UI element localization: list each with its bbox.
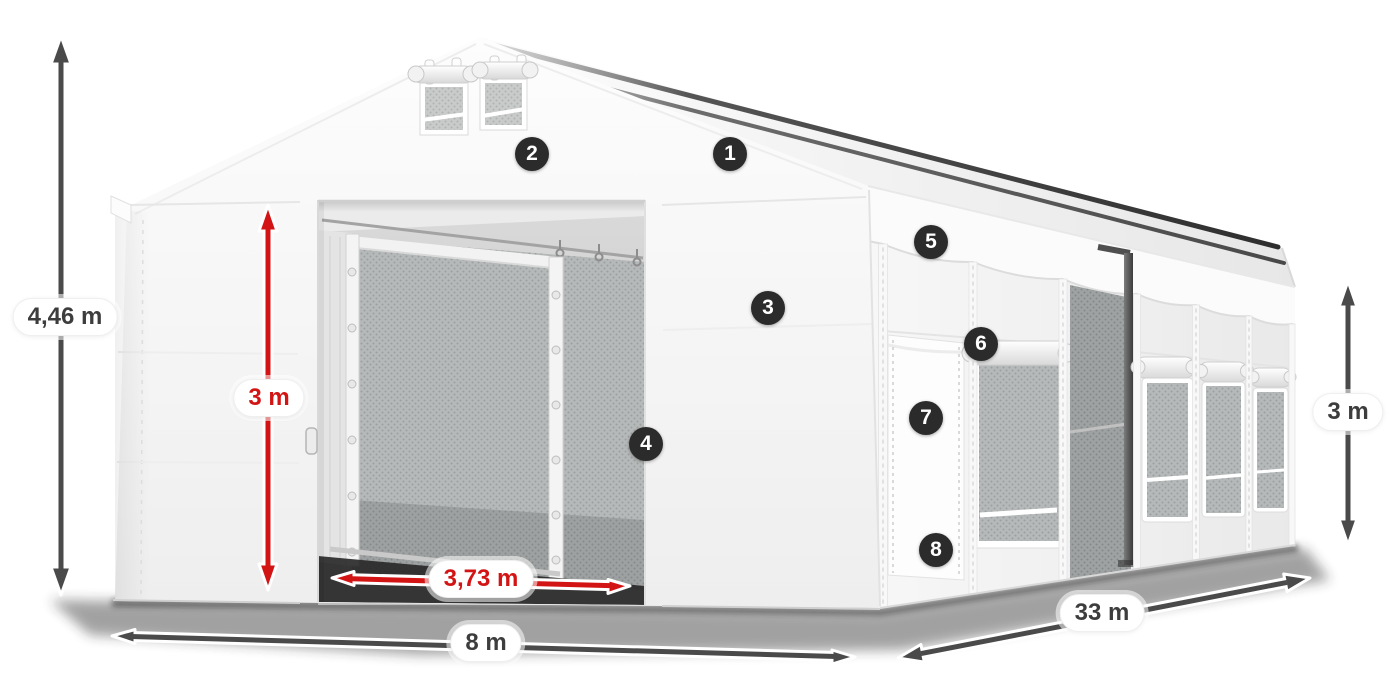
dimension-label-door-width: 3,73 m — [429, 560, 534, 598]
marker-7[interactable]: 7 — [909, 401, 943, 435]
marker-5[interactable]: 5 — [914, 225, 948, 259]
dimension-label-side-height: 3 m — [1312, 393, 1383, 431]
dimension-label-total-height: 4,46 m — [13, 298, 118, 336]
door-handle — [306, 428, 317, 454]
dimension-label-width: 8 m — [450, 624, 521, 662]
side-window-3 — [1195, 362, 1254, 517]
marker-8[interactable]: 8 — [919, 533, 953, 567]
tent-dimension-diagram: 4,46 m 3 m 3,73 m 8 m 33 m 3 m 1 2 3 4 5… — [0, 0, 1400, 700]
marker-3[interactable]: 3 — [751, 291, 785, 325]
side-doorway-open — [1070, 247, 1138, 579]
marker-6[interactable]: 6 — [964, 327, 998, 361]
dimension-label-door-height: 3 m — [233, 379, 304, 417]
tent-illustration — [0, 0, 1400, 700]
marker-4[interactable]: 4 — [629, 427, 663, 461]
tent-interior — [318, 200, 645, 605]
dimension-label-length: 33 m — [1060, 594, 1145, 632]
marker-2[interactable]: 2 — [515, 137, 549, 171]
doorway-side-pole — [1124, 253, 1133, 565]
marker-1[interactable]: 1 — [713, 137, 747, 171]
